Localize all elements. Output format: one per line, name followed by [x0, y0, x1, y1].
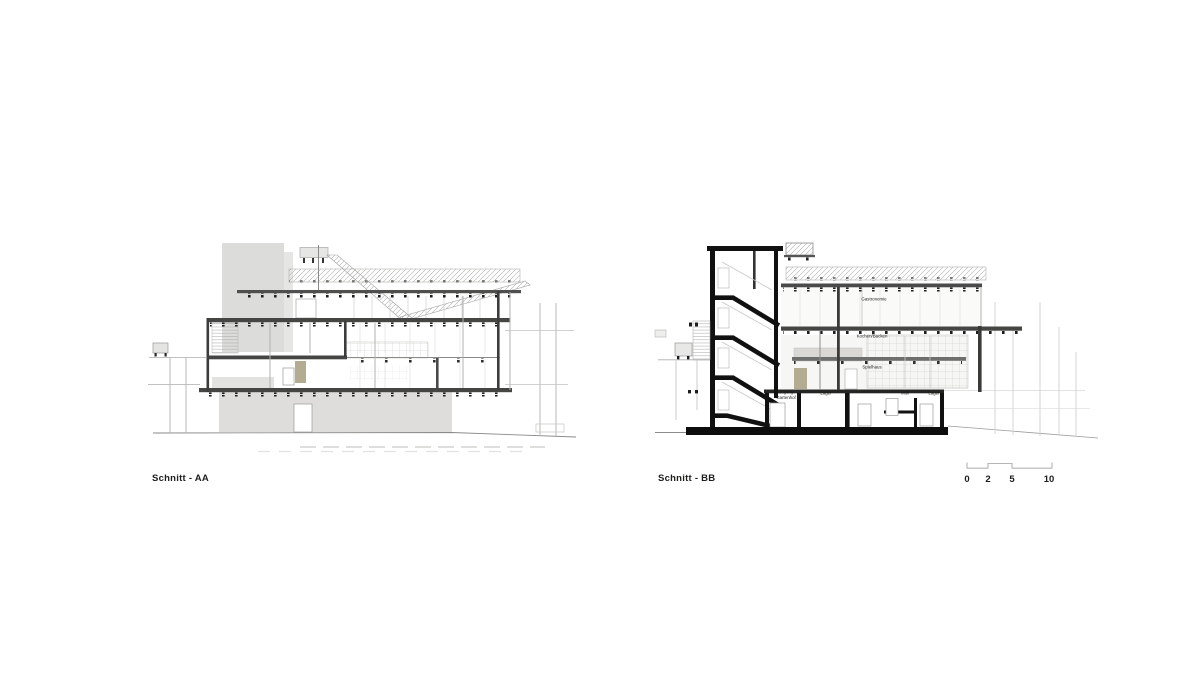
room-label-lager-2: Lager	[928, 391, 939, 396]
exterior-stair-bb	[693, 321, 710, 360]
roof-beam-aa	[237, 290, 521, 293]
ground-slab-bb	[686, 427, 948, 435]
room-label-zugang-line2: Gartenhof	[776, 395, 796, 400]
basement-door-aa	[294, 404, 312, 432]
section-aa-drawing	[148, 243, 576, 452]
ground-line-aa	[153, 433, 576, 438]
scale-tick-0: 0	[964, 474, 969, 485]
scale-bar-graphic	[967, 463, 1052, 469]
roof-box-aa	[300, 248, 328, 258]
roof-slab-bb	[781, 284, 982, 288]
tan-door-bb	[794, 368, 807, 389]
drawing-sheet: Schnitt - AA Schnitt - BB Gastronomie Ko…	[0, 0, 1200, 675]
room-label-zugang-line1: Zugang	[776, 390, 796, 395]
scale-tick-2: 2	[985, 474, 990, 485]
tan-door-aa	[295, 361, 306, 383]
slab-lower-aa	[199, 388, 512, 392]
tower-left-wall-bb	[710, 251, 715, 428]
slab-upper-aa	[207, 318, 510, 322]
section-bb-title: Schnitt - BB	[658, 473, 715, 484]
section-aa-title: Schnitt - AA	[152, 473, 209, 484]
slab-mid-bb	[792, 357, 966, 361]
shelf-grid-aa	[346, 342, 428, 358]
ground-line-bb	[948, 426, 1098, 438]
roof-box-bb	[786, 243, 813, 255]
section-bb-drawing	[655, 243, 1098, 438]
room-label-gastronomie: Gastronomie	[861, 297, 886, 302]
room-label-zugang: ZugangGartenhof	[776, 390, 796, 401]
room-label-lager-1: Lager	[820, 391, 831, 396]
scale-tick-10: 10	[1044, 474, 1055, 485]
slab-upper-bb	[781, 327, 1022, 331]
scale-tick-5: 5	[1009, 474, 1014, 485]
sections-canvas	[0, 0, 1200, 675]
tower-roof-bb	[707, 246, 783, 251]
stair-diagonal-aa-1	[327, 255, 413, 321]
room-label-spielhaus: Spielhaus	[862, 365, 881, 370]
slab-mid-aa	[207, 356, 347, 360]
basement-mass-aa	[219, 392, 452, 432]
interior-stair-aa	[212, 323, 238, 353]
room-label-kochen-backen: Kochen/Backen	[857, 334, 888, 339]
room-label-muell: Müll	[901, 391, 909, 396]
